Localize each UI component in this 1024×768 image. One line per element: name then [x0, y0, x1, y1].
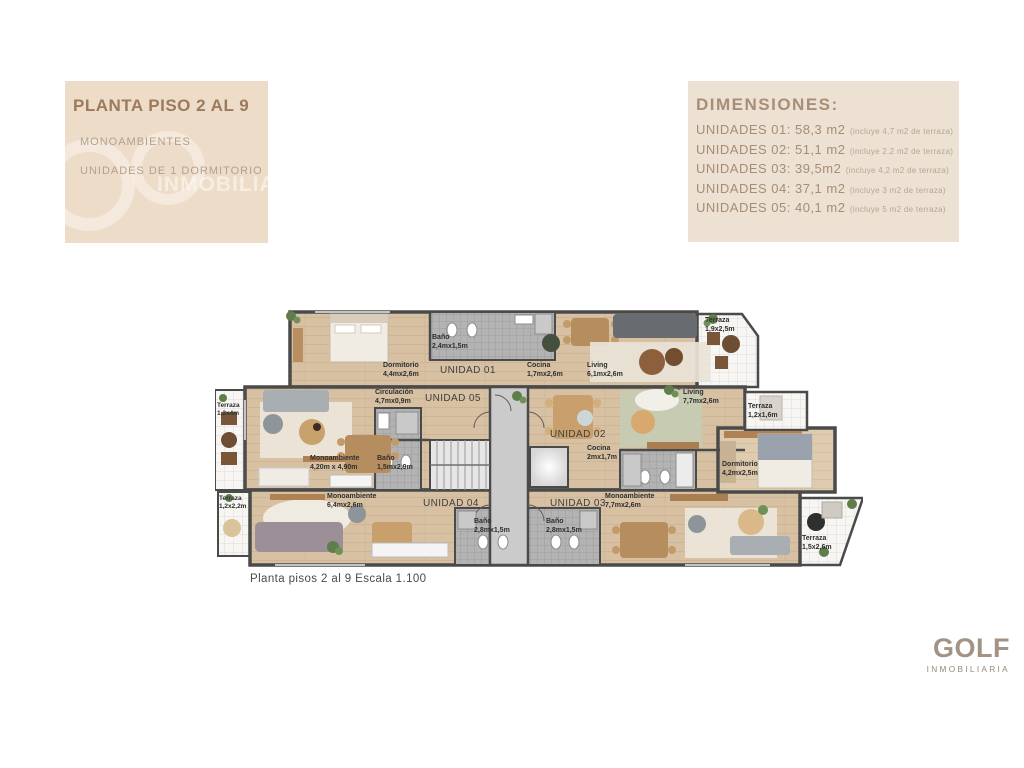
room-label-dormitorio-u01: Dormitorio4,4mx2,6m — [383, 362, 419, 380]
unit-label-02: UNIDAD 02 — [550, 429, 606, 440]
subtitle-unidades: UNIDADES DE 1 DORMITORIO — [80, 165, 263, 177]
room-label-bano-u05: Baño1,5mx2,9m — [377, 455, 413, 473]
room-label-living-u02: Living7,7mx2,6m — [683, 389, 719, 407]
unit-label-03: UNIDAD 03 — [550, 498, 606, 509]
dimensions-heading: DIMENSIONES: — [696, 95, 959, 115]
floor-plan: Dormitorio4,4mx2,6m Baño2,4mx1,5m Cocina… — [215, 300, 863, 572]
room-label-terraza-1222: Terraza1,2x2,2m — [219, 495, 246, 511]
room-label-circulacion: Circulación4,7mx0,9m — [375, 389, 413, 407]
room-label-monoambiente-u04: Monoambiente6,4mx2,6m — [327, 493, 376, 511]
room-label-terraza-19: Terraza1,9x2,5m — [705, 317, 735, 335]
dimension-row: UNIDADES 01: 58,3 m2 (incluye 4,7 m2 de … — [696, 121, 959, 141]
brochure-page: INMOBILIA PLANTA PISO 2 AL 9 MONOAMBIENT… — [0, 0, 1024, 768]
plan-info-box: INMOBILIA PLANTA PISO 2 AL 9 MONOAMBIENT… — [65, 81, 268, 243]
room-label-dormitorio-u02: Dormitorio4,2mx2,5m — [722, 461, 758, 479]
subtitle-monoambientes: MONOAMBIENTES — [80, 136, 191, 148]
room-label-bano-u04: Baño2,8mx1,5m — [474, 518, 510, 536]
golf-logo: GOLF INMOBILIARIA — [910, 635, 1010, 674]
unit-label-04: UNIDAD 04 — [423, 498, 479, 509]
room-label-living-u01: Living6,1mx2,6m — [587, 362, 623, 380]
unit-label-01: UNIDAD 01 — [440, 365, 496, 376]
room-label-bano-u01: Baño2,4mx1,5m — [432, 334, 468, 352]
watermark-ring-icon — [65, 139, 135, 231]
floor-plan-drawing — [215, 300, 863, 572]
unit-label-05: UNIDAD 05 — [425, 393, 481, 404]
room-label-terraza-124: Terraza1,2x4m — [217, 402, 240, 418]
dimensions-box: DIMENSIONES: UNIDADES 01: 58,3 m2 (inclu… — [688, 81, 959, 242]
dimension-row: UNIDADES 04: 37,1 m2 (incluye 3 m2 de te… — [696, 180, 959, 200]
room-label-cocina-u01: Cocina1,7mx2,6m — [527, 362, 563, 380]
logo-tagline: INMOBILIARIA — [910, 664, 1010, 674]
dimension-row: UNIDADES 05: 40,1 m2 (incluye 5 m2 de te… — [696, 199, 959, 219]
room-label-terraza-1526: Terraza1,5x2,6m — [802, 535, 832, 553]
room-label-bano-u03: Baño2,8mx1,5m — [546, 518, 582, 536]
room-label-terraza-1216: Terraza1,2x1,6m — [748, 403, 778, 421]
dimension-row: UNIDADES 02: 51,1 m2 (incluye 2.2 m2 de … — [696, 141, 959, 161]
dimension-row: UNIDADES 03: 39,5m2 (incluye 4,2 m2 de t… — [696, 160, 959, 180]
room-label-cocina-u02: Cocina2mx1,7m — [587, 445, 617, 463]
room-label-monoambiente-u05: Monoambiente4,20m x 4,90m — [310, 455, 359, 473]
room-label-monoambiente-u03: Monoambiente7,7mx2,6m — [605, 493, 654, 511]
elevator — [530, 447, 568, 487]
plan-caption: Planta pisos 2 al 9 Escala 1.100 — [250, 573, 426, 585]
logo-name: GOLF — [910, 635, 1010, 662]
page-title: PLANTA PISO 2 AL 9 — [73, 96, 249, 116]
